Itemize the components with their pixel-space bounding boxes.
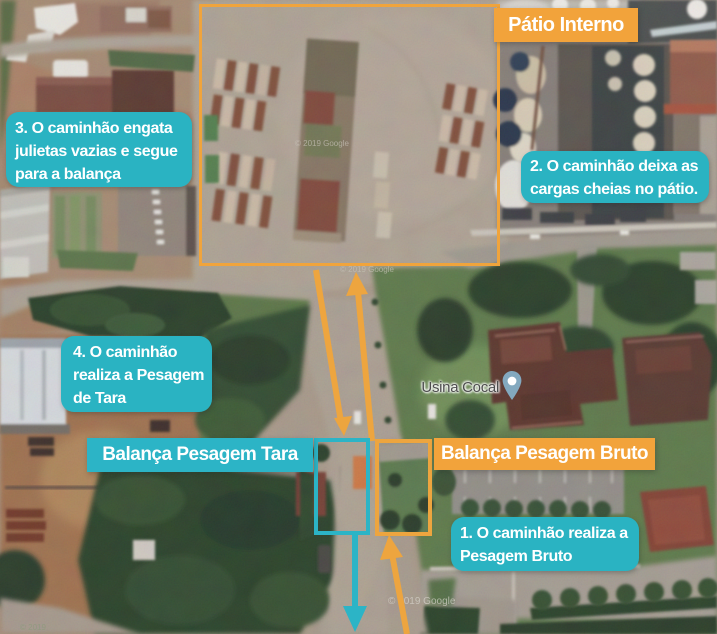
svg-text:© 2019: © 2019: [20, 623, 46, 632]
svg-text:© 2019 Google: © 2019 Google: [340, 265, 394, 274]
